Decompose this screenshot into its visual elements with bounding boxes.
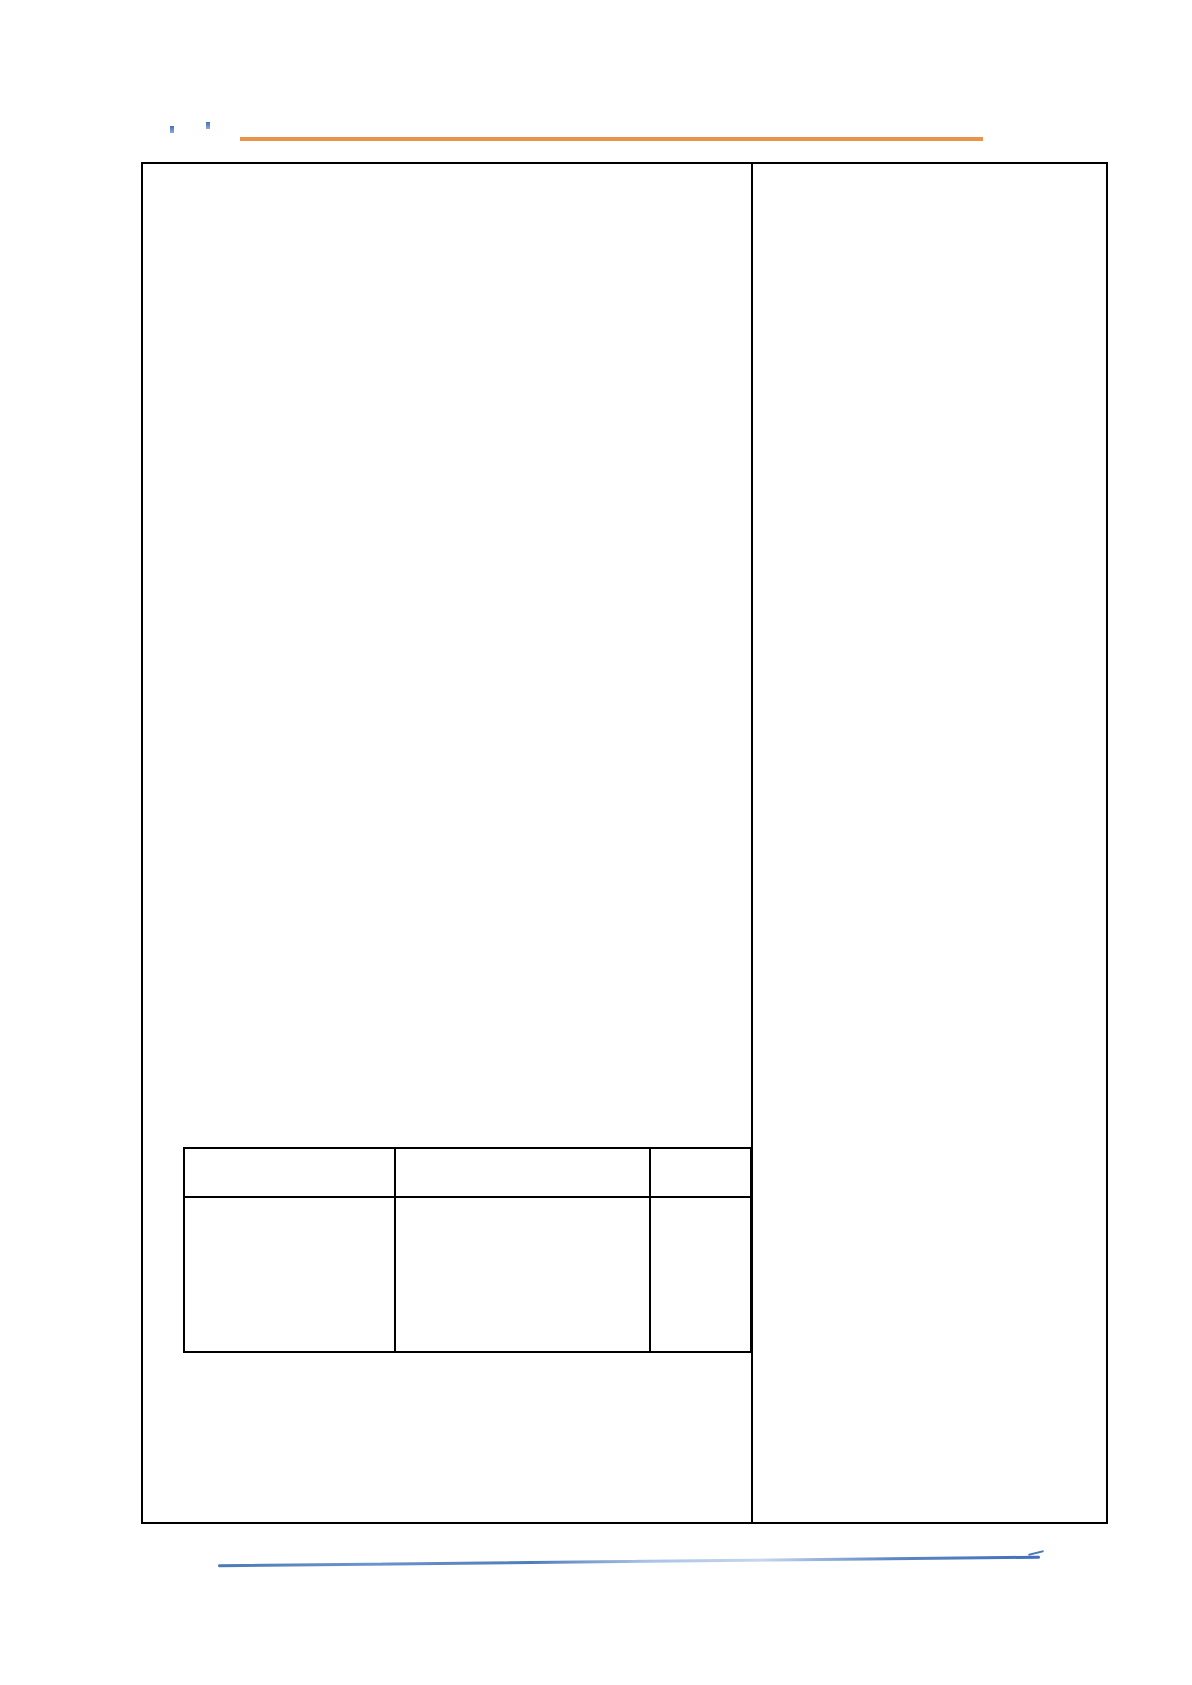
document-page — [0, 0, 1192, 1685]
tiny-blue-mark-2 — [206, 122, 210, 129]
table-header-cell — [185, 1149, 396, 1198]
table-header-cell — [396, 1149, 651, 1198]
table-body-cell — [185, 1198, 396, 1351]
empty-table — [183, 1147, 752, 1353]
tiny-blue-mark-1 — [170, 126, 174, 133]
blue-hand-drawn-underline — [218, 1556, 1040, 1568]
table-header-cell — [651, 1149, 750, 1198]
orange-heading-rule — [240, 137, 983, 141]
content-frame — [141, 162, 1108, 1524]
table-body-cell — [651, 1198, 750, 1351]
table-body-cell — [396, 1198, 651, 1351]
